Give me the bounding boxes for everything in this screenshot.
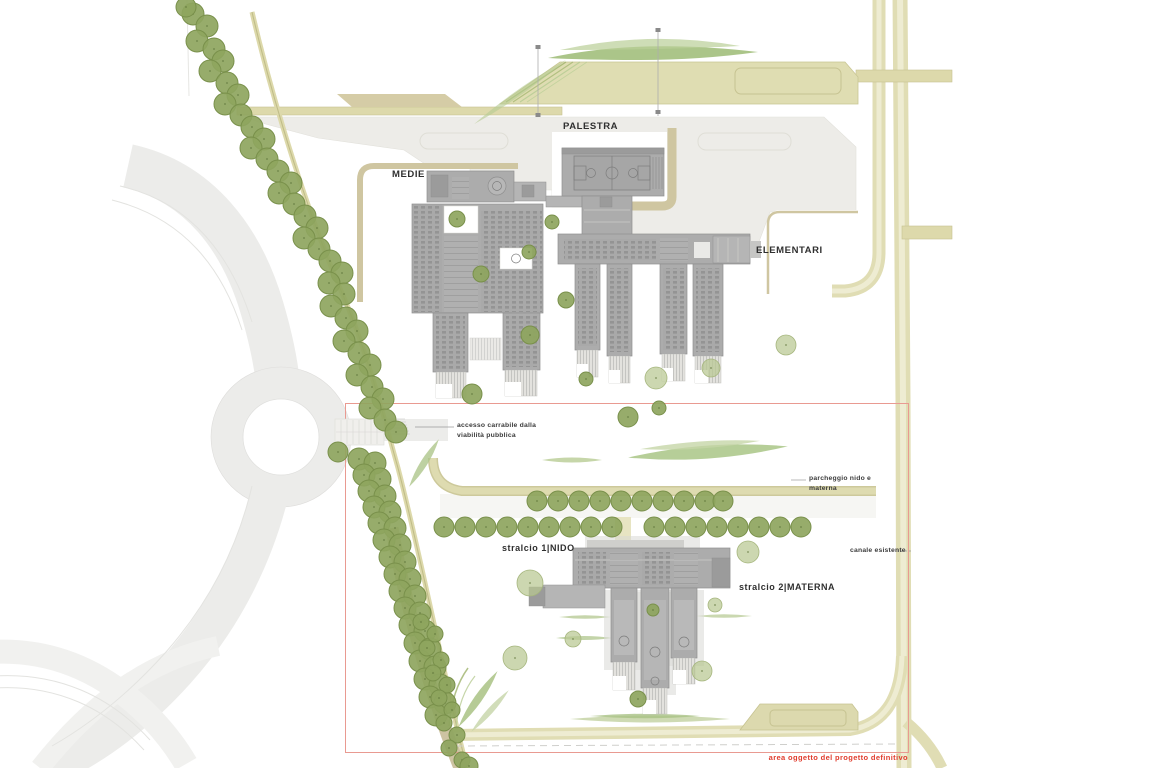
tree-center-dot (551, 221, 553, 223)
tree-center-dot (303, 237, 305, 239)
tree-center-dot (658, 407, 660, 409)
tree-center-dot (382, 398, 384, 400)
tree-center-dot (224, 103, 226, 105)
tree-center-dot (704, 500, 706, 502)
tree-center-dot (456, 218, 458, 220)
annotation-accesso-line1: accesso carrabile dalla (457, 422, 536, 429)
section-marker-icon (536, 113, 541, 117)
label-area-boundary: area oggetto del progetto definitivo (769, 753, 908, 762)
tree-center-dot (206, 25, 208, 27)
tree-center-dot (250, 147, 252, 149)
tree-center-dot (572, 638, 574, 640)
tree-center-dot (373, 506, 375, 508)
tree-center-dot (653, 526, 655, 528)
tree-center-dot (358, 458, 360, 460)
tree-center-dot (384, 419, 386, 421)
tree-center-dot (620, 500, 622, 502)
tree-center-dot (485, 526, 487, 528)
tree-center-dot (371, 386, 373, 388)
label-stralcio-1-nido: stralcio 1|NIDO (502, 543, 575, 554)
tree-center-dot (343, 293, 345, 295)
tree-center-dot (419, 660, 421, 662)
annotation-accesso: accesso carrabile dallaviabilità pubblic… (457, 421, 536, 441)
berm-mid (406, 437, 788, 488)
tree-center-dot (328, 282, 330, 284)
tree-center-dot (420, 621, 422, 623)
tree-center-dot (528, 251, 530, 253)
tree-center-dot (514, 657, 516, 659)
annotation-parcheggio: parcheggio nido ematerna (809, 474, 871, 494)
tree-center-dot (464, 526, 466, 528)
tree-center-dot (506, 526, 508, 528)
tree-center-dot (548, 526, 550, 528)
tree-center-dot (358, 352, 360, 354)
label-elementari: ELEMENTARI (756, 245, 823, 256)
tree-center-dot (716, 526, 718, 528)
landscape-layer (0, 0, 952, 768)
site-plan: PALESTRA MEDIE ELEMENTARI accesso carrab… (0, 0, 1154, 768)
tree-center-dot (599, 500, 601, 502)
tree-center-dot (356, 330, 358, 332)
tree-center-dot (722, 500, 724, 502)
tree-center-dot (378, 522, 380, 524)
tree-center-dot (446, 684, 448, 686)
tree-center-dot (237, 94, 239, 96)
tree-center-dot (363, 474, 365, 476)
tree-center-dot (779, 526, 781, 528)
tree-center-dot (611, 526, 613, 528)
tree-center-dot (448, 747, 450, 749)
tree-center-dot (737, 526, 739, 528)
tree-center-dot (304, 215, 306, 217)
tree-center-dot (277, 170, 279, 172)
tree-center-dot (356, 374, 358, 376)
tree-center-dot (456, 734, 458, 736)
tree-center-dot (785, 344, 787, 346)
tree-center-dot (329, 260, 331, 262)
tree-center-dot (424, 630, 426, 632)
tree-center-dot (471, 393, 473, 395)
tree-center-dot (536, 500, 538, 502)
tree-center-dot (695, 526, 697, 528)
tree-center-dot (185, 6, 187, 8)
tree-center-dot (240, 114, 242, 116)
tree-center-dot (369, 407, 371, 409)
tree-center-dot (384, 495, 386, 497)
tree-center-dot (290, 182, 292, 184)
tree-center-dot (293, 203, 295, 205)
tree-center-dot (652, 609, 654, 611)
tree-center-dot (569, 526, 571, 528)
site-plan-drawing (0, 0, 1154, 768)
tree-center-dot (440, 659, 442, 661)
annotation-parcheggio-line2: materna (809, 485, 837, 492)
section-marker-icon (656, 28, 661, 32)
tree-center-dot (662, 500, 664, 502)
tree-center-dot (343, 340, 345, 342)
palestra-gym (562, 148, 664, 196)
section-marker-icon (536, 45, 541, 49)
tree-center-dot (747, 551, 749, 553)
tree-center-dot (318, 248, 320, 250)
tree-center-dot (404, 561, 406, 563)
tree-center-dot (263, 138, 265, 140)
tree-center-dot (389, 556, 391, 558)
tree-center-dot (226, 82, 228, 84)
tree-center-dot (341, 272, 343, 274)
tree-center-dot (209, 70, 211, 72)
tree-center-dot (480, 273, 482, 275)
tree-center-dot (196, 40, 198, 42)
tree (176, 0, 196, 17)
tree-center-dot (424, 678, 426, 680)
tree-center-dot (409, 578, 411, 580)
tree-center-dot (438, 697, 440, 699)
tree-center-dot (394, 573, 396, 575)
tree-center-dot (565, 299, 567, 301)
tree-center-dot (434, 633, 436, 635)
tree-center-dot (345, 317, 347, 319)
tree-center-dot (451, 709, 453, 711)
label-medie: MEDIE (392, 169, 425, 180)
tree-center-dot (222, 60, 224, 62)
tree-center-dot (529, 334, 531, 336)
tree-center-dot (557, 500, 559, 502)
section-marker-icon (656, 110, 661, 114)
tree-center-dot (578, 500, 580, 502)
tree-center-dot (374, 462, 376, 464)
tree-center-dot (399, 544, 401, 546)
tree-center-dot (800, 526, 802, 528)
tree-center-dot (414, 642, 416, 644)
tree-center-dot (435, 714, 437, 716)
tree-center-dot (426, 647, 428, 649)
tree-center-dot (443, 722, 445, 724)
tree-center-dot (758, 526, 760, 528)
tree-center-dot (674, 526, 676, 528)
tree-center-dot (395, 431, 397, 433)
tree-center-dot (710, 367, 712, 369)
tree-center-dot (394, 527, 396, 529)
tree-center-dot (585, 378, 587, 380)
tree-center-dot (399, 590, 401, 592)
label-stralcio-2-materna: stralcio 2|MATERNA (739, 582, 835, 593)
tree-center-dot (278, 192, 280, 194)
building-nido-materna (529, 536, 730, 714)
tree-center-dot (529, 582, 531, 584)
tree-center-dot (468, 765, 470, 767)
tree-center-dot (266, 158, 268, 160)
tree-center-dot (383, 539, 385, 541)
tree-center-dot (590, 526, 592, 528)
tree-center-dot (213, 48, 215, 50)
annotation-canale: canale esistente (850, 546, 906, 556)
annotation-parcheggio-line1: parcheggio nido e (809, 475, 871, 482)
tree-center-dot (655, 377, 657, 379)
label-palestra: PALESTRA (563, 121, 618, 132)
tree-center-dot (389, 511, 391, 513)
tree-center-dot (714, 604, 716, 606)
tree-center-dot (683, 500, 685, 502)
tree-center-dot (330, 305, 332, 307)
tree-center-dot (637, 698, 639, 700)
tree-center-dot (379, 478, 381, 480)
tree-center-dot (404, 607, 406, 609)
tree-center-dot (368, 490, 370, 492)
tree-center-dot (627, 416, 629, 418)
tree-center-dot (527, 526, 529, 528)
tree-center-dot (443, 526, 445, 528)
tree-center-dot (432, 672, 434, 674)
tree-center-dot (316, 227, 318, 229)
annotation-accesso-line2: viabilità pubblica (457, 432, 516, 439)
tree-center-dot (369, 364, 371, 366)
tree-center-dot (701, 670, 703, 672)
top-tan-band (337, 94, 462, 107)
tree-center-dot (641, 500, 643, 502)
tree-center-dot (414, 595, 416, 597)
tree-center-dot (337, 451, 339, 453)
tree-center-dot (251, 126, 253, 128)
tree-center-dot (409, 624, 411, 626)
